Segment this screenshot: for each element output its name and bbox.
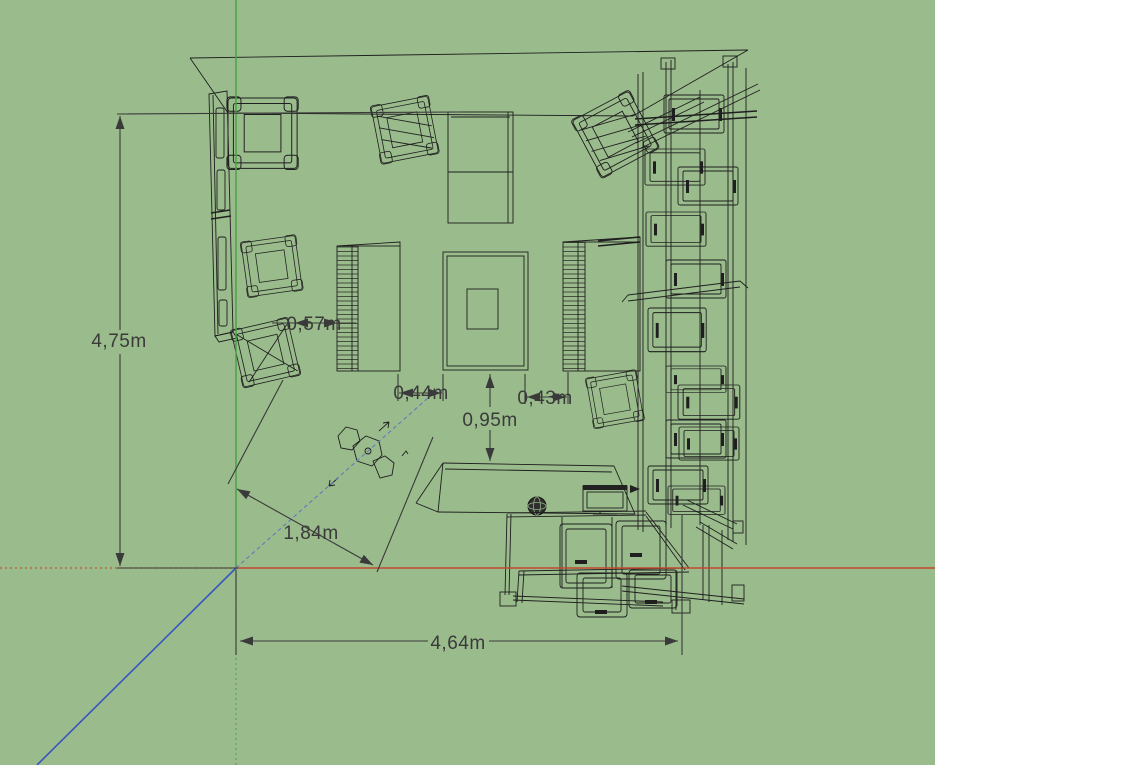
- dim-label-room-width: 4,64m: [430, 633, 485, 654]
- viewport-canvas[interactable]: 4,75m 0,57m 0,44m 0,43m 0,95m 1,84m 4,6: [0, 0, 1141, 765]
- modeler-viewport[interactable]: 4,75m 0,57m 0,44m 0,43m 0,95m 1,84m 4,6: [0, 0, 1141, 765]
- dim-label-chair-to-shelf: 0,57m: [286, 314, 341, 335]
- side-panel: [935, 0, 1141, 765]
- dim-label-shelf-to-table: 0,44m: [393, 383, 448, 404]
- dim-label-room-height: 4,75m: [91, 331, 146, 352]
- dim-label-table-to-console: 0,95m: [462, 410, 517, 431]
- dim-label-diagonal-gap: 1,84m: [283, 523, 338, 544]
- dim-label-table-to-shelf: 0,43m: [517, 388, 572, 409]
